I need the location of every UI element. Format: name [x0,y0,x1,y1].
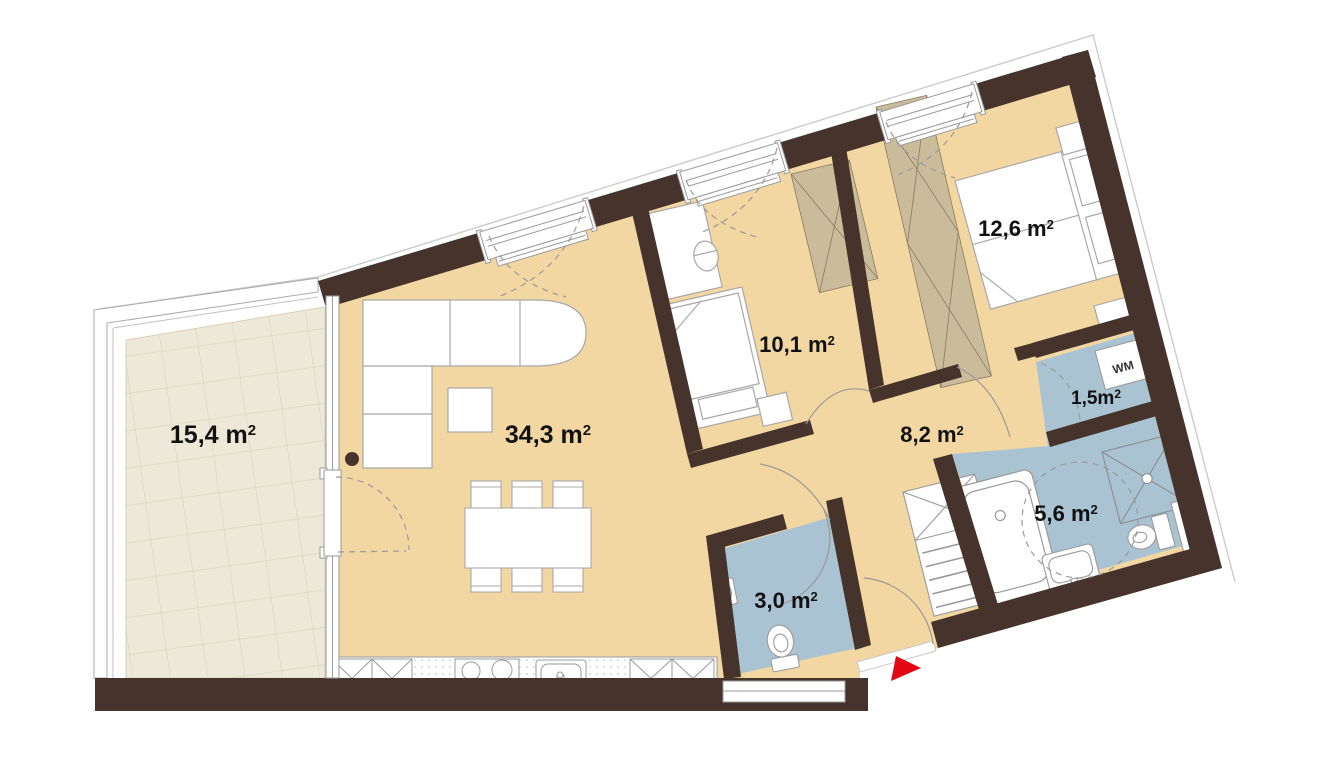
area-label-terrace: 15,4 m2 [170,421,256,449]
area-label-bathroom: 5,6 m2 [1034,501,1098,526]
side-table [448,388,492,432]
area-label-bedroom-large: 12,6 m2 [978,216,1054,241]
dining-set [465,481,591,592]
floor-plan-svg: WM [0,0,1321,772]
area-label-living-kitchen: 34,3 m2 [505,421,591,449]
room-terrace [126,307,325,678]
column-dot [345,452,359,466]
area-label-utility: 1,5m2 [1071,387,1121,409]
terrace-door [324,470,341,556]
dining-table [465,508,591,568]
area-label-wc: 3,0 m2 [754,588,818,613]
nightstand-small-bedroom [757,392,793,426]
area-label-bedroom-small: 10,1 m2 [759,332,835,357]
floor-plan-page: WM [0,0,1321,772]
area-label-hallway: 8,2 m2 [900,422,964,447]
